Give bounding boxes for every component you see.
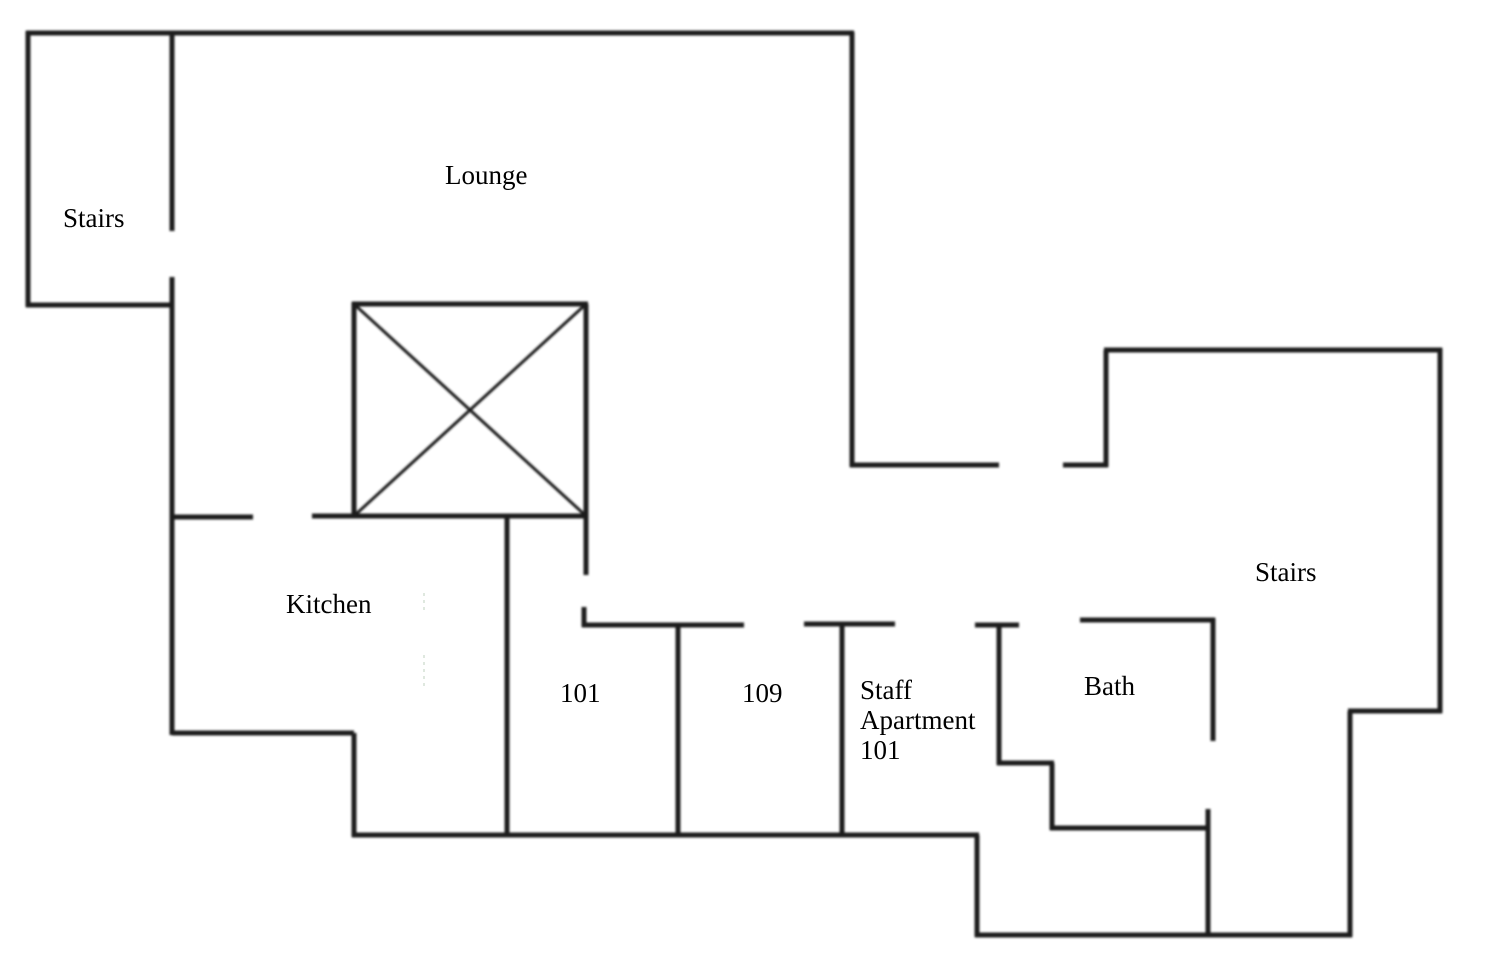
svg-text:Lounge: Lounge [445, 160, 527, 190]
svg-text:Kitchen: Kitchen [286, 589, 372, 619]
svg-text:Stairs: Stairs [1255, 557, 1317, 587]
svg-text:101: 101 [560, 678, 601, 708]
svg-text:Stairs: Stairs [63, 203, 125, 233]
svg-text:101: 101 [860, 735, 901, 765]
svg-text:109: 109 [742, 678, 783, 708]
svg-text:Staff: Staff [860, 675, 912, 705]
svg-text:Apartment: Apartment [860, 705, 976, 735]
svg-text:Bath: Bath [1084, 671, 1135, 701]
